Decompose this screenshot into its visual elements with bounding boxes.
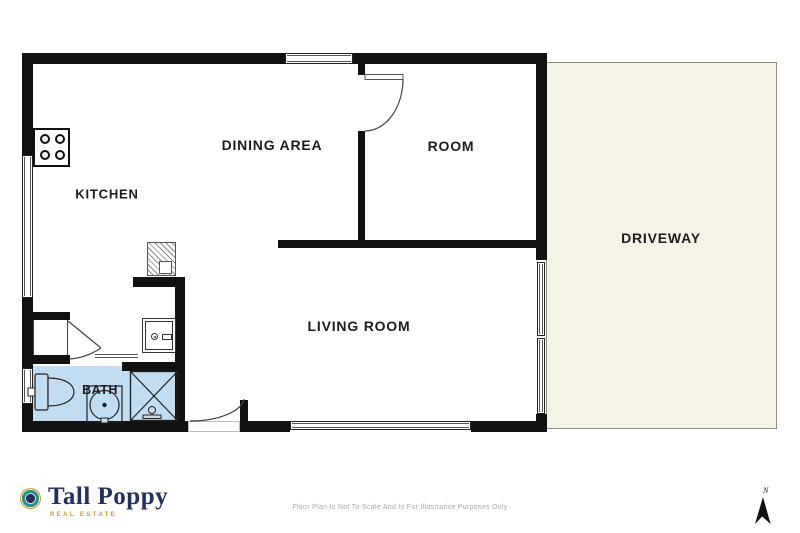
washer-dial-dot: [154, 336, 156, 338]
washing-machine-icon: [142, 318, 176, 353]
logo: Tall Poppy REAL ESTATE: [20, 483, 168, 518]
stove-burner-icon: [40, 134, 50, 144]
stove-burner-icon: [40, 150, 50, 160]
stove-burner-icon: [55, 150, 65, 160]
door-room: [365, 75, 403, 132]
logo-tagline: REAL ESTATE: [50, 512, 168, 518]
window-bottom-living: [290, 421, 471, 430]
disclaimer-text: Floor Plan Is Not To Scale And Is For Il…: [292, 504, 507, 511]
door-opening-room: [358, 75, 365, 131]
wall-top-left: [22, 53, 285, 64]
window-right-lower: [537, 338, 545, 414]
floorplan-canvas: KITCHEN DINING AREA ROOM LIVING ROOM BAT…: [0, 0, 800, 533]
wall-bath-top: [122, 362, 178, 371]
wall-bottom-right: [471, 421, 547, 432]
hwc-inner-box: [159, 261, 172, 274]
window-left-kitchen: [22, 155, 33, 298]
label-bath: BATH: [82, 383, 118, 397]
wall-top-right: [353, 53, 547, 64]
closet-recess: [33, 320, 68, 355]
wall-room-divider-top: [358, 64, 365, 75]
window-top: [285, 53, 353, 64]
logo-text-block: Tall Poppy REAL ESTATE: [48, 483, 168, 518]
wall-room-divider-bottom: [358, 131, 365, 248]
door-opening-bottom: [188, 421, 240, 432]
label-kitchen: KITCHEN: [75, 187, 138, 202]
label-dining-area: DINING AREA: [222, 137, 323, 153]
window-right-upper: [537, 262, 545, 336]
washer-panel: [162, 334, 172, 340]
hot-water-cylinder-icon: [147, 242, 176, 276]
north-label: N: [763, 486, 768, 495]
label-driveway: DRIVEWAY: [621, 230, 701, 246]
door-leaf-bottom: [240, 400, 248, 421]
wall-bottom-middle: [240, 421, 290, 432]
window-left-bath: [22, 368, 33, 404]
stove-icon: [33, 128, 70, 167]
wall-living-room-top: [278, 240, 547, 248]
label-room: ROOM: [428, 138, 475, 154]
tall-poppy-logo-icon: [20, 488, 41, 509]
logo-name: Tall Poppy: [48, 483, 168, 511]
north-arrow-icon: [753, 497, 773, 524]
door-living-room: [190, 399, 244, 421]
wall-bottom-left: [22, 421, 188, 432]
wall-hall-right: [175, 277, 185, 421]
wall-closet-top: [33, 312, 70, 320]
wall-left-middle: [22, 298, 33, 368]
wall-right-upper: [536, 53, 547, 260]
label-living-room: LIVING ROOM: [308, 318, 411, 334]
wall-left-upper: [22, 53, 33, 155]
bench-line: [95, 354, 138, 358]
wall-closet-bottom: [33, 355, 70, 364]
stove-burner-icon: [55, 134, 65, 144]
